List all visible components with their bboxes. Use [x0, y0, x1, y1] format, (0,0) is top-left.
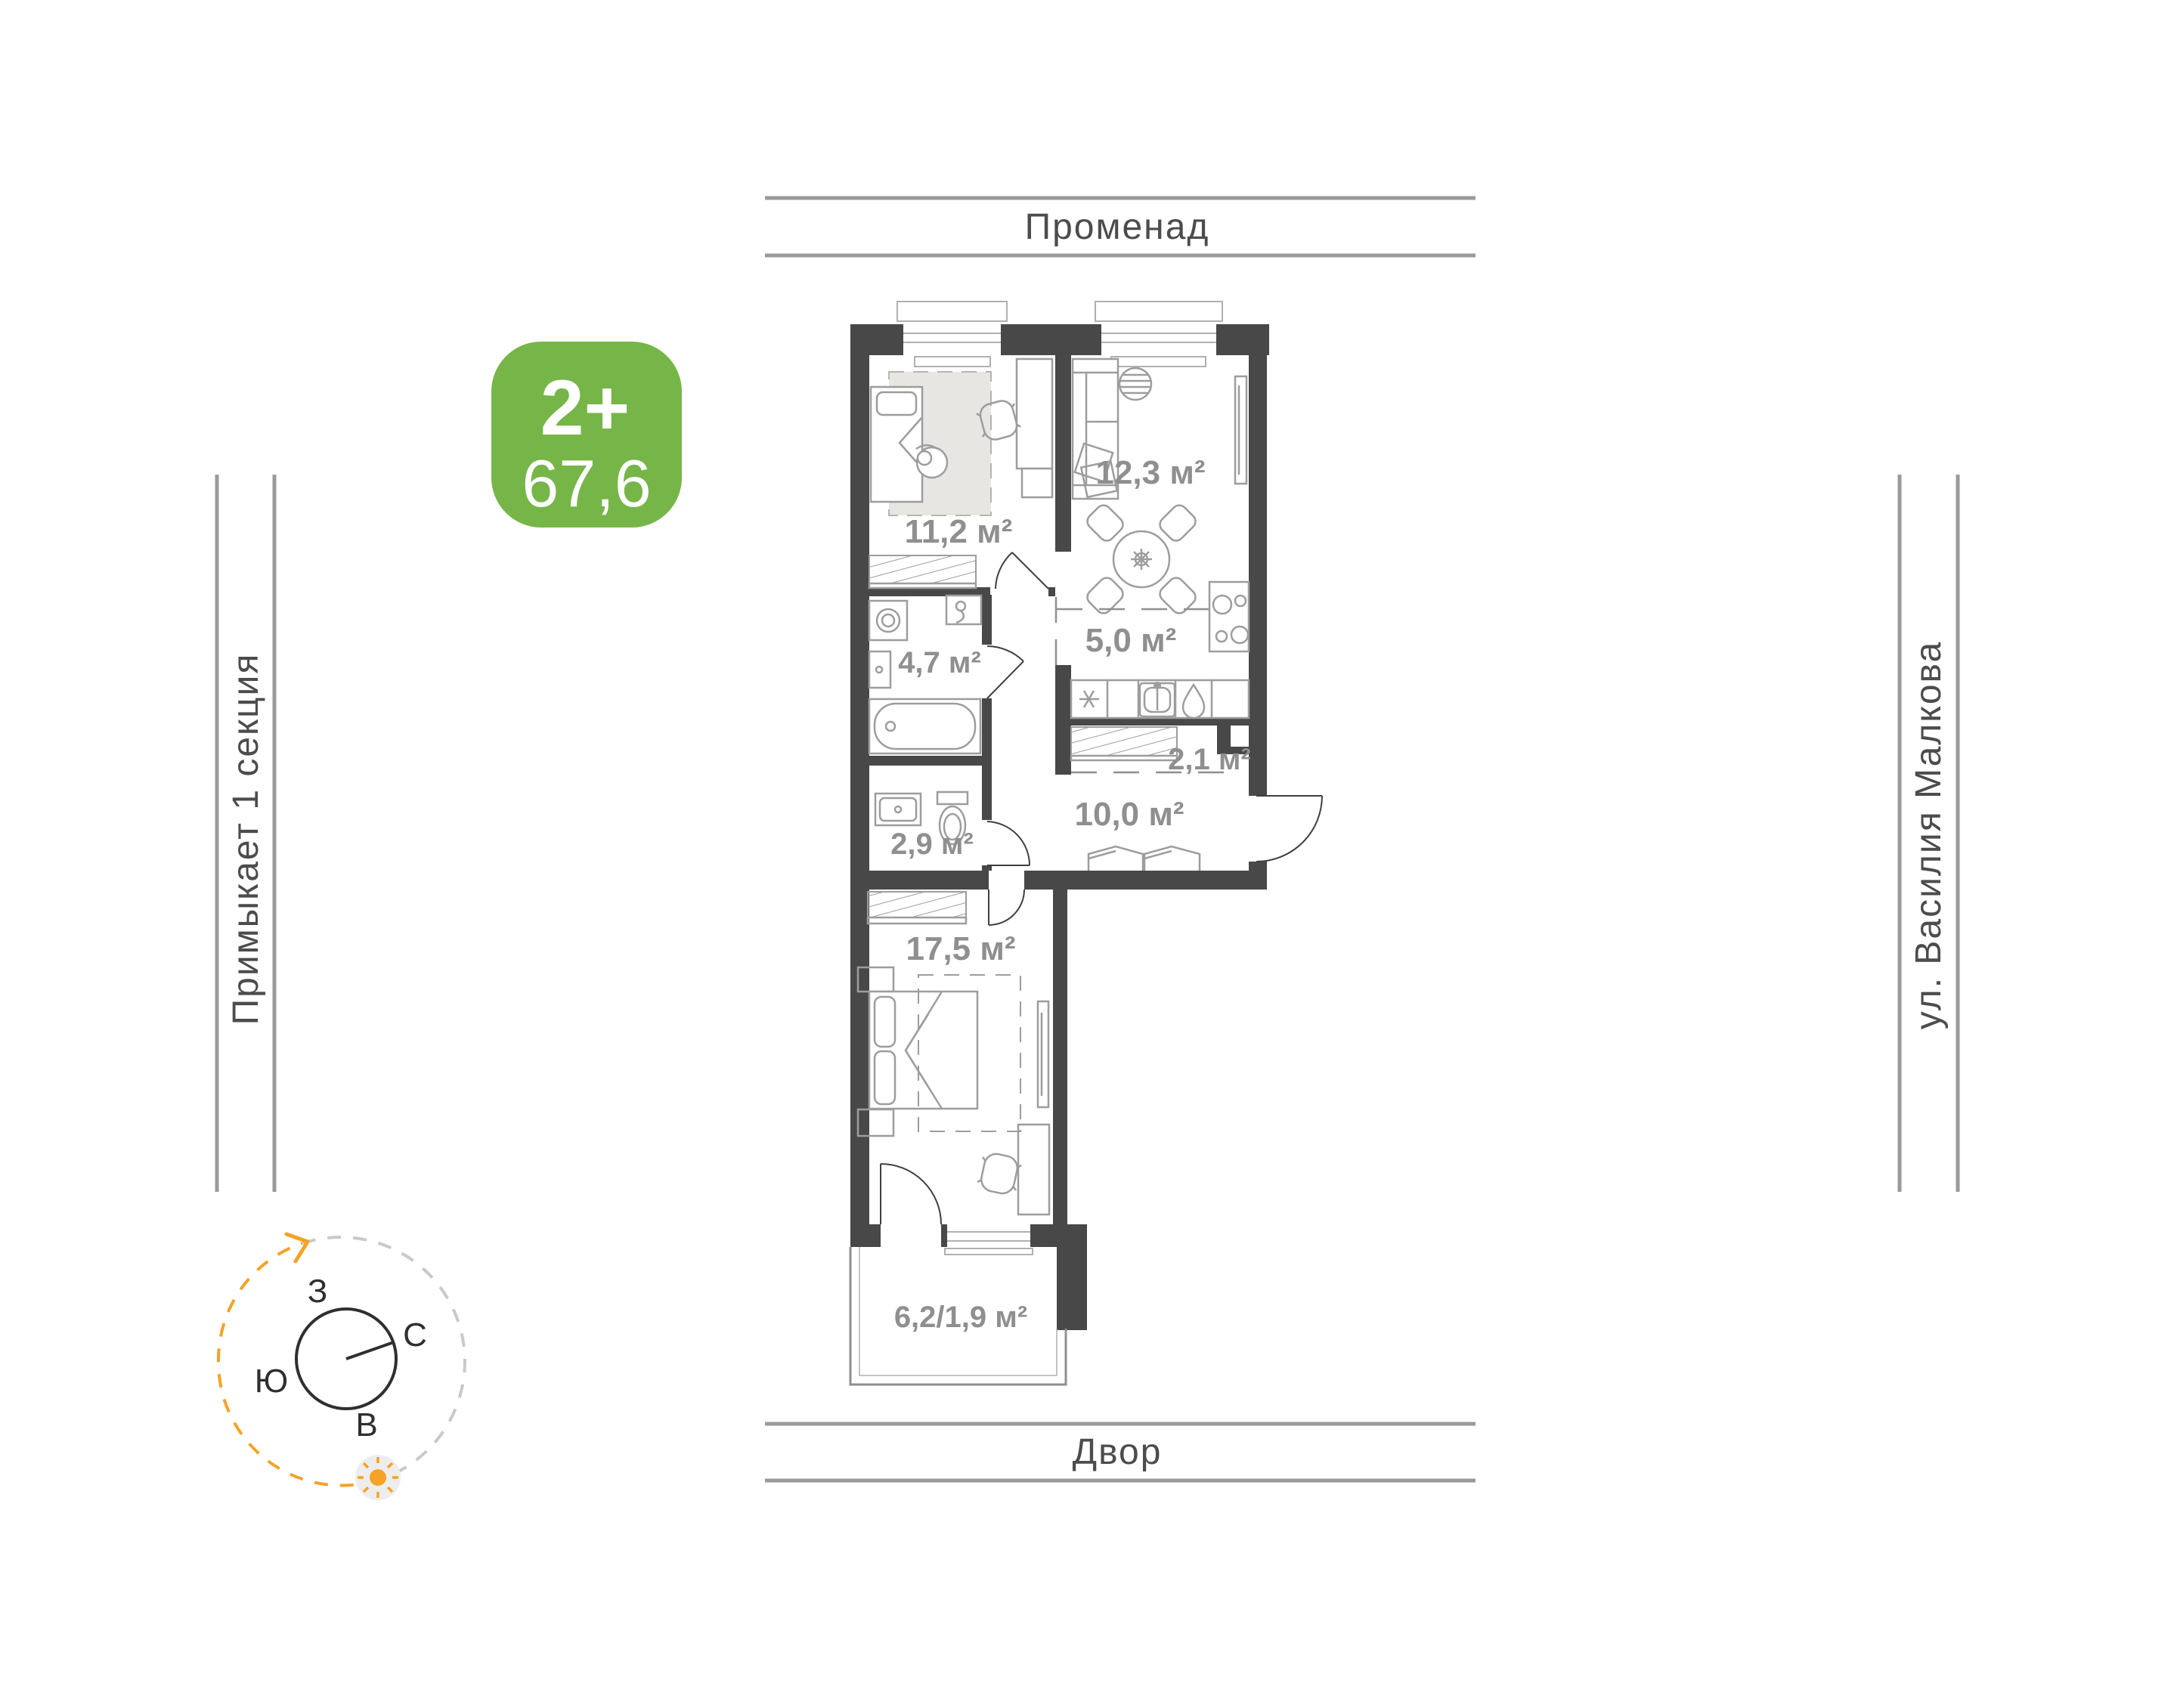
street-label-top: Променад — [1025, 207, 1210, 247]
sink-icon — [875, 794, 921, 825]
compass-letter-east: В — [355, 1406, 377, 1443]
double-bed-icon — [869, 992, 977, 1109]
compass-letter-north: С — [403, 1317, 427, 1354]
dining-table-icon — [1084, 502, 1198, 616]
unit-total-area: 67,6 — [522, 446, 651, 521]
water-drop-icon — [1183, 685, 1204, 718]
room-area-label: 4,7 м² — [898, 646, 981, 679]
window-icon — [945, 1232, 1033, 1255]
water-heater-icon — [946, 596, 981, 624]
living-room: 12,3 м² — [1073, 359, 1246, 617]
wardrobe-icon — [868, 892, 966, 924]
door-arc-icon — [987, 646, 1023, 698]
wc: 2,9 м² — [875, 792, 1030, 865]
room-area-label: 6,2/1,9 м² — [894, 1301, 1027, 1334]
bedroom: 17,5 м² — [858, 892, 1049, 1255]
kitchen-counter — [1071, 680, 1249, 718]
room-area-label: 11,2 м² — [905, 513, 1013, 550]
desk-icon — [1017, 359, 1052, 497]
single-bed-icon — [871, 387, 922, 502]
floor-plan: 11,2 м² — [850, 302, 1322, 1385]
sink-icon — [1140, 682, 1175, 716]
hallway: 10,0 м² — [989, 796, 1322, 925]
room-area-label: 10,0 м² — [1074, 796, 1184, 833]
floor-plan-page: Променад Двор Примыкает 1 секция ул. Вас… — [0, 0, 2177, 1708]
side-label-right: ул. Василия Малкова — [1909, 641, 1949, 1029]
room-area-label: 2,9 м² — [890, 828, 974, 861]
street-band-top: Променад — [765, 198, 1476, 255]
sink-icon — [869, 651, 890, 688]
side-band-left: Примыкает 1 секция — [217, 475, 274, 1192]
plant-icon — [1119, 368, 1151, 400]
tv-icon — [1038, 1001, 1048, 1107]
room-area-label: 2,1 м² — [1168, 743, 1251, 776]
wardrobe-icon — [869, 555, 976, 588]
shoe-bench-icon — [1088, 846, 1200, 871]
compass: З С Ю В — [218, 1234, 465, 1500]
compass-letter-south: Ю — [255, 1363, 288, 1400]
room-area-label: 12,3 м² — [1095, 454, 1205, 491]
unit-badge: 2+ 67,6 — [491, 342, 682, 528]
bathtub-icon — [869, 699, 980, 753]
balcony: 6,2/1,9 м² — [850, 1247, 1066, 1385]
room-area-label: 5,0 м² — [1085, 622, 1177, 659]
door-arc-icon — [987, 822, 1030, 865]
window-icon — [1095, 302, 1222, 367]
side-band-right: ул. Василия Малкова — [1900, 475, 1958, 1192]
door-arc-icon — [989, 890, 1024, 925]
entrance-door-arc-icon — [1256, 796, 1322, 862]
tv-icon — [1235, 376, 1246, 484]
unit-type-label: 2+ — [540, 364, 630, 452]
wardrobe-icon — [1071, 727, 1177, 756]
bathroom: 4,7 м² — [869, 596, 1023, 753]
room-11-2: 11,2 м² — [869, 359, 1052, 589]
window-icon — [897, 302, 1007, 367]
stove-icon — [1209, 582, 1249, 651]
street-label-bottom: Двор — [1073, 1432, 1163, 1472]
washing-machine-icon — [869, 601, 907, 640]
street-band-bottom: Двор — [765, 1424, 1476, 1481]
washer-icon — [1079, 691, 1099, 707]
balcony-door-arc-icon — [881, 1164, 941, 1224]
room-area-label: 17,5 м² — [906, 930, 1015, 967]
side-label-left: Примыкает 1 секция — [226, 653, 266, 1026]
door-arc-icon — [996, 552, 1048, 589]
compass-letter-west: З — [308, 1273, 328, 1310]
chair-icon — [976, 1151, 1022, 1196]
floor-plan-canvas: Променад Двор Примыкает 1 секция ул. Вас… — [0, 0, 2177, 1708]
desk-icon — [1018, 1125, 1049, 1214]
